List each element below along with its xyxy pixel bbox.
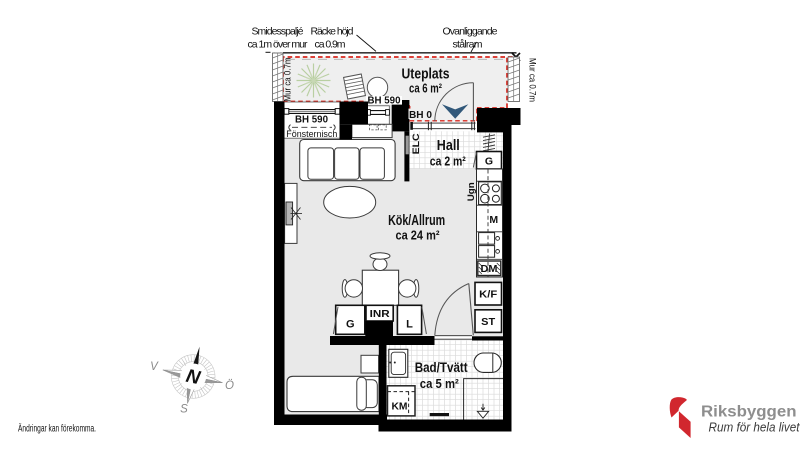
svg-text:BH 590: BH 590 — [295, 115, 328, 126]
svg-text:stålram: stålram — [453, 39, 483, 51]
svg-text:INR: INR — [370, 309, 391, 320]
svg-text:Ovanliggande: Ovanliggande — [443, 26, 498, 38]
svg-text:G: G — [346, 319, 355, 331]
svg-text:KM: KM — [392, 400, 408, 412]
svg-text:ca 5 m²: ca 5 m² — [420, 377, 459, 391]
svg-text:Mur ca 0.7m: Mur ca 0.7m — [527, 58, 538, 102]
svg-text:Smidesspaljé: Smidesspaljé — [252, 26, 304, 38]
svg-text:ca 0.9m: ca 0.9m — [315, 39, 346, 51]
svg-text:Uteplats: Uteplats — [402, 66, 450, 83]
svg-text:Bad/Tvätt: Bad/Tvätt — [415, 359, 468, 375]
svg-text:Ugn: Ugn — [466, 182, 476, 201]
svg-text:ca 24 m²: ca 24 m² — [396, 228, 440, 242]
svg-text:S: S — [180, 404, 188, 416]
svg-text:L: L — [406, 319, 413, 331]
svg-text:ca 6 m²: ca 6 m² — [409, 82, 442, 96]
svg-text:ELC: ELC — [411, 133, 422, 154]
svg-text:Kök/Allrum: Kök/Allrum — [388, 212, 445, 229]
svg-text:M: M — [489, 214, 498, 226]
svg-text:ca 1m över mur: ca 1m över mur — [248, 39, 309, 51]
svg-text:Rum för hela livet: Rum för hela livet — [709, 421, 800, 435]
svg-text:Riksbyggen: Riksbyggen — [701, 404, 797, 421]
svg-text:DM: DM — [481, 263, 498, 275]
svg-text:K/F: K/F — [479, 289, 498, 301]
svg-text:ca 2 m²: ca 2 m² — [430, 155, 466, 169]
svg-text:Ändringar kan förekomma.: Ändringar kan förekomma. — [18, 423, 96, 435]
svg-text:G: G — [485, 155, 493, 167]
svg-text:Räcke höjd: Räcke höjd — [311, 26, 354, 38]
svg-text:ST: ST — [481, 316, 496, 328]
svg-text:BH 590: BH 590 — [368, 96, 401, 107]
svg-text:BH 0: BH 0 — [409, 110, 432, 121]
svg-text:Fönsternisch: Fönsternisch — [286, 129, 337, 140]
svg-text:Mur ca 0.7m: Mur ca 0.7m — [283, 57, 294, 101]
svg-text:Ö: Ö — [225, 380, 234, 392]
svg-text:V: V — [150, 361, 159, 373]
svg-text:Hall: Hall — [437, 137, 460, 154]
